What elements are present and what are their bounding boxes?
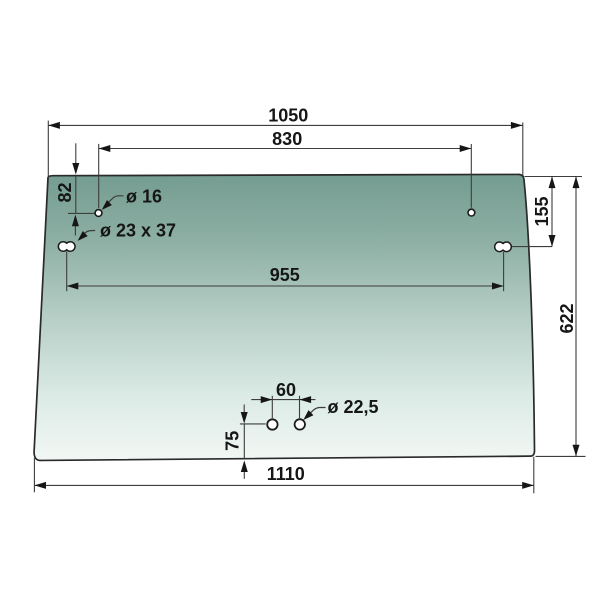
svg-text:ø 23 x 37: ø 23 x 37 — [100, 220, 176, 240]
svg-text:830: 830 — [272, 129, 302, 149]
svg-text:622: 622 — [557, 303, 577, 333]
svg-text:955: 955 — [270, 265, 300, 285]
svg-text:75: 75 — [223, 431, 243, 451]
svg-text:ø 16: ø 16 — [126, 186, 162, 206]
svg-text:1110: 1110 — [267, 464, 305, 484]
svg-text:60: 60 — [276, 380, 296, 400]
svg-text:ø 22,5: ø 22,5 — [328, 397, 379, 417]
svg-text:155: 155 — [532, 196, 552, 226]
svg-text:82: 82 — [55, 182, 75, 202]
svg-text:1050: 1050 — [268, 105, 308, 125]
